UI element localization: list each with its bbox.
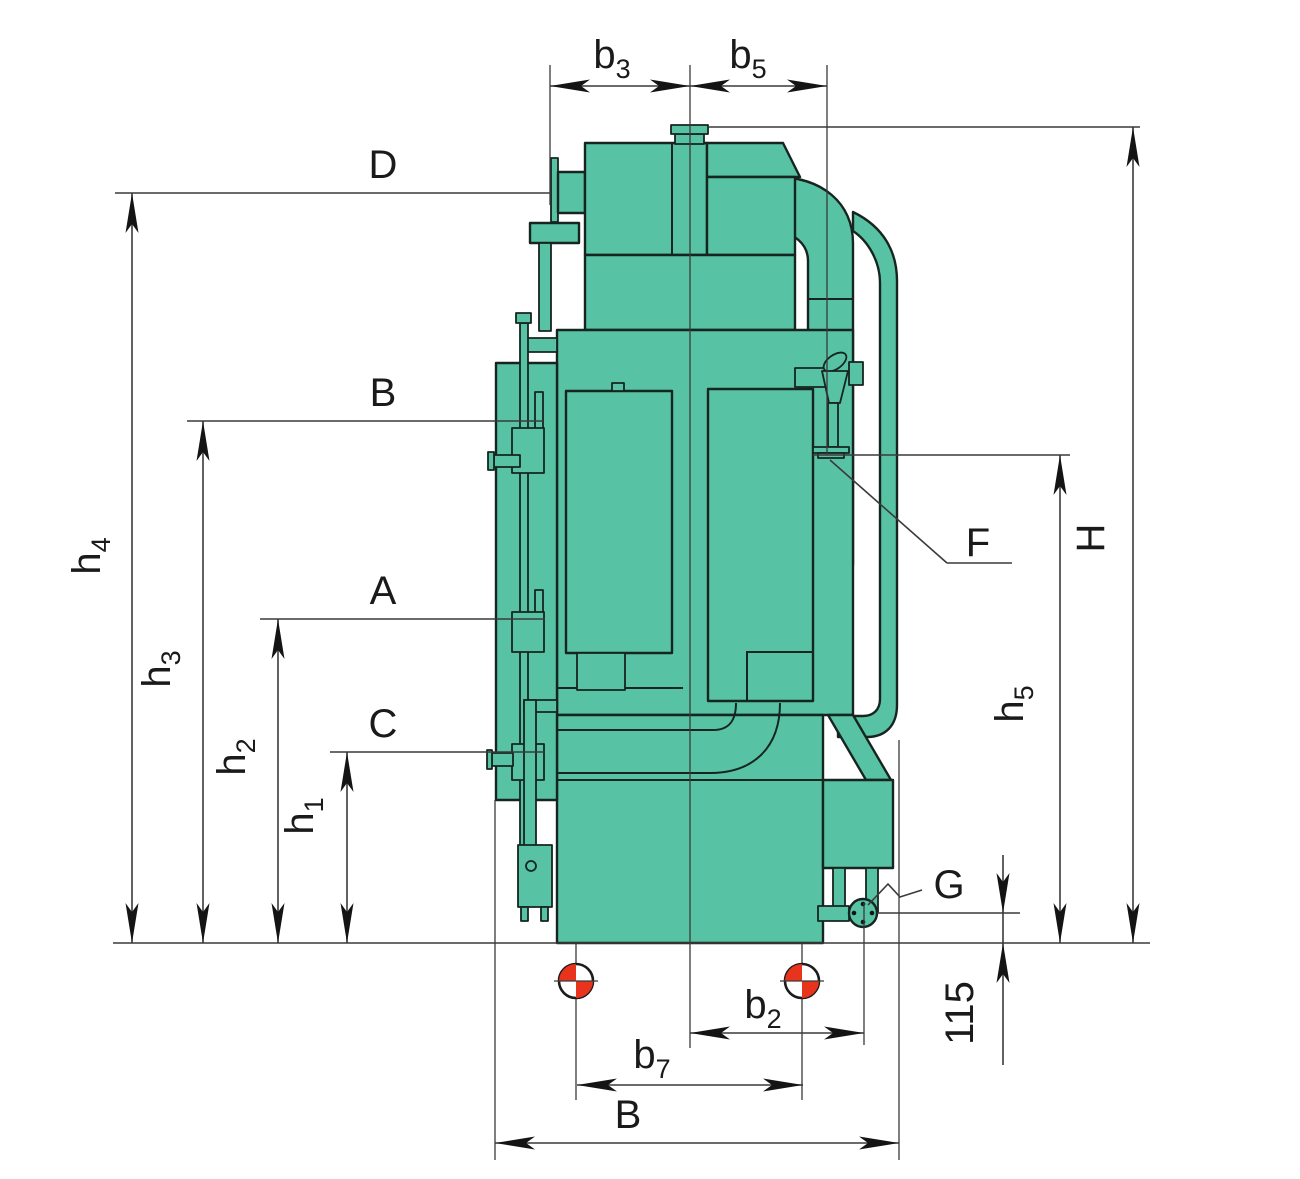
label-G: G <box>933 863 964 907</box>
label-115: 115 <box>938 981 982 1045</box>
label-h2: h2 <box>210 738 261 775</box>
label-h1: h1 <box>278 797 329 834</box>
door-sill-box <box>577 653 625 690</box>
label-B-bottom: B <box>615 1093 642 1137</box>
label-b5: b5 <box>729 33 766 84</box>
door-tab <box>612 383 624 391</box>
technical-drawing-canvas: b3 b5 D B A C h4 h3 h2 h1 H h5 F G 115 b… <box>0 0 1300 1179</box>
label-A: A <box>370 569 397 613</box>
control-box-foot <box>541 907 548 921</box>
label-H: H <box>1069 524 1113 553</box>
datum-target-icon <box>554 964 598 998</box>
label-h3: h3 <box>135 650 186 687</box>
flange-bolt <box>870 911 875 916</box>
label-b3: b3 <box>593 33 630 84</box>
valve-stem <box>828 403 838 447</box>
label-b7: b7 <box>633 1033 670 1084</box>
feed-pipe-vertical <box>524 700 536 848</box>
top-box-right <box>707 177 795 255</box>
lower-nozzle <box>492 753 513 766</box>
gauge-cap <box>516 313 531 323</box>
datum-target-icon <box>780 964 824 998</box>
flange-g <box>849 899 877 927</box>
right-base-box <box>823 780 893 868</box>
machine-body <box>487 125 897 943</box>
drain-pipe <box>818 906 849 921</box>
label-C: C <box>369 702 398 746</box>
right-access-door <box>708 389 813 701</box>
side-nozzle <box>494 455 520 467</box>
port-fitting-a <box>512 612 544 652</box>
roof-slope <box>707 143 800 177</box>
left-access-door <box>566 391 672 653</box>
lower-nozzle-cap <box>487 750 492 769</box>
left-duct-stub <box>558 172 585 213</box>
boiler-dimension-drawing: b3 b5 D B A C h4 h3 h2 h1 H h5 F G 115 b… <box>0 0 1300 1179</box>
left-post <box>539 243 551 331</box>
burner-control-box <box>518 845 552 907</box>
label-h5: h5 <box>988 685 1039 722</box>
valve-bracket <box>849 362 863 385</box>
label-B-left: B <box>370 371 397 415</box>
control-box-foot <box>521 907 528 921</box>
top-box <box>585 143 707 255</box>
label-D: D <box>369 143 398 187</box>
flange-bolt <box>852 911 857 916</box>
label-h4: h4 <box>65 537 116 574</box>
gauge-elbow <box>526 338 557 352</box>
label-b2: b2 <box>744 983 781 1034</box>
left-shelf-bracket <box>530 223 579 243</box>
control-knob <box>526 861 536 871</box>
side-nozzle-cap <box>488 452 494 470</box>
label-F: F <box>966 521 990 565</box>
